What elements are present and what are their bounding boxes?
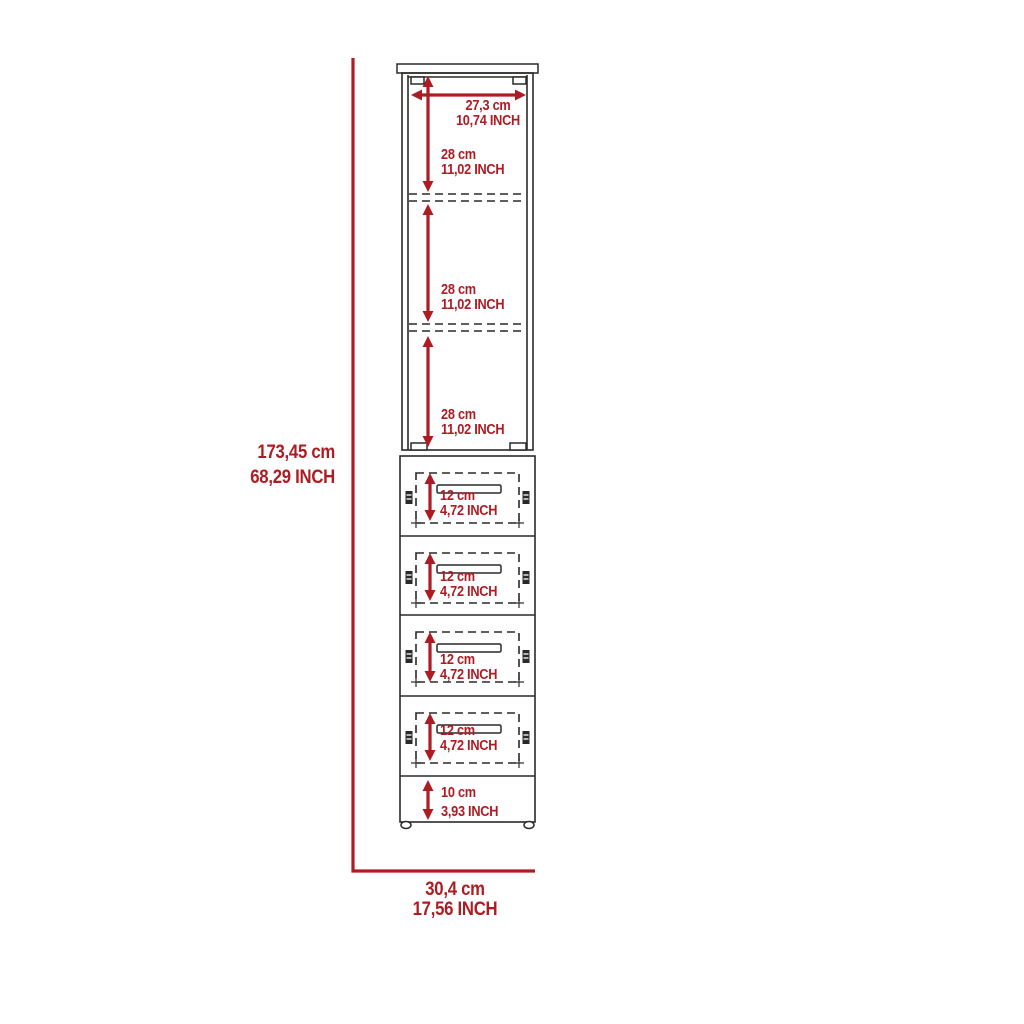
overall-width-label: 30,4 cm 17,56 INCH — [399, 880, 512, 920]
vertical-dimension-arrow — [423, 780, 434, 820]
arrowhead — [423, 204, 434, 215]
shelf-section-3-inch: 11,02 INCH — [441, 423, 504, 438]
overall-width-inch: 17,56 INCH — [399, 900, 512, 920]
drawer-slide-right-icon — [523, 491, 530, 504]
drawer-3-label: 12 cm 4,72 INCH — [440, 653, 497, 683]
arrowhead — [423, 336, 434, 347]
arrowhead — [423, 780, 434, 791]
drawer-handle — [437, 644, 501, 652]
arrowhead — [425, 473, 436, 484]
shelf-section-3-cm: 28 cm — [441, 408, 504, 423]
drawer-3-inch: 4,72 INCH — [440, 668, 497, 683]
arrowhead — [423, 311, 434, 322]
drawer-slide-left-icon — [406, 731, 413, 744]
arrowhead — [423, 181, 434, 192]
foot-right-icon — [524, 822, 534, 829]
dimension-arrows — [411, 76, 526, 820]
base-height-cm: 10 cm — [441, 784, 498, 803]
inner-width-cm: 27,3 cm — [451, 99, 525, 114]
drawer-1-label: 12 cm 4,72 INCH — [440, 489, 497, 519]
drawer-slide-left-icon — [406, 571, 413, 584]
upper-cabinet-box — [402, 73, 533, 450]
drawer-slide-right-icon — [523, 650, 530, 663]
cabinet-dimension-diagram: 173,45 cm 68,29 INCH 30,4 cm 17,56 INCH … — [0, 0, 1024, 1024]
drawer-4-inch: 4,72 INCH — [440, 739, 497, 754]
vertical-dimension-arrow — [425, 473, 436, 521]
drawer-1-cm: 12 cm — [440, 489, 497, 504]
drawer-4-label: 12 cm 4,72 INCH — [440, 724, 497, 754]
shelf-section-1-cm: 28 cm — [441, 148, 504, 163]
shelf-section-2-inch: 11,02 INCH — [441, 298, 504, 313]
arrowhead — [425, 632, 436, 643]
arrowhead — [411, 90, 422, 101]
base-height-label: 10 cm 3,93 INCH — [441, 784, 498, 822]
arrowhead — [425, 671, 436, 682]
arrowhead — [425, 590, 436, 601]
hinge-top-left-icon — [411, 77, 424, 84]
diagram-linework — [0, 0, 1024, 1024]
overall-width-cm: 30,4 cm — [399, 880, 512, 900]
cabinet-top-panel — [397, 64, 538, 73]
drawer-3-cm: 12 cm — [440, 653, 497, 668]
arrowhead — [423, 809, 434, 820]
shelf-section-1-label: 28 cm 11,02 INCH — [441, 148, 504, 178]
drawer-slide-right-icon — [523, 571, 530, 584]
foot-left-icon — [401, 822, 411, 829]
inner-width-inch: 10,74 INCH — [451, 114, 525, 129]
arrowhead — [425, 510, 436, 521]
drawer-4-cm: 12 cm — [440, 724, 497, 739]
inner-width-label: 27,3 cm 10,74 INCH — [451, 99, 525, 129]
drawer-2-label: 12 cm 4,72 INCH — [440, 570, 497, 600]
drawer-1-inch: 4,72 INCH — [440, 504, 497, 519]
drawer-slide-left-icon — [406, 491, 413, 504]
arrowhead — [425, 713, 436, 724]
drawer-slide-right-icon — [523, 731, 530, 744]
vertical-dimension-arrow — [423, 336, 434, 447]
vertical-dimension-arrow — [423, 204, 434, 322]
overall-height-label: 173,45 cm 68,29 INCH — [238, 440, 335, 490]
shelf-section-1-inch: 11,02 INCH — [441, 163, 504, 178]
overall-height-inch: 68,29 INCH — [238, 465, 335, 490]
shelf-section-2-label: 28 cm 11,02 INCH — [441, 283, 504, 313]
shelf-section-2-cm: 28 cm — [441, 283, 504, 298]
cabinet-outline — [397, 64, 538, 829]
vertical-dimension-arrow — [425, 553, 436, 601]
drawer-2-inch: 4,72 INCH — [440, 585, 497, 600]
arrowhead — [425, 553, 436, 564]
vertical-dimension-arrow — [425, 713, 436, 761]
overall-height-cm: 173,45 cm — [238, 440, 335, 465]
base-height-inch: 3,93 INCH — [441, 803, 498, 822]
hinge-bottom-right-icon — [510, 443, 526, 450]
drawer-2-cm: 12 cm — [440, 570, 497, 585]
shelf-section-3-label: 28 cm 11,02 INCH — [441, 408, 504, 438]
drawer-slide-left-icon — [406, 650, 413, 663]
vertical-dimension-arrow — [425, 632, 436, 682]
hinge-top-right-icon — [513, 77, 526, 84]
arrowhead — [425, 750, 436, 761]
hinge-bottom-left-icon — [411, 443, 427, 450]
